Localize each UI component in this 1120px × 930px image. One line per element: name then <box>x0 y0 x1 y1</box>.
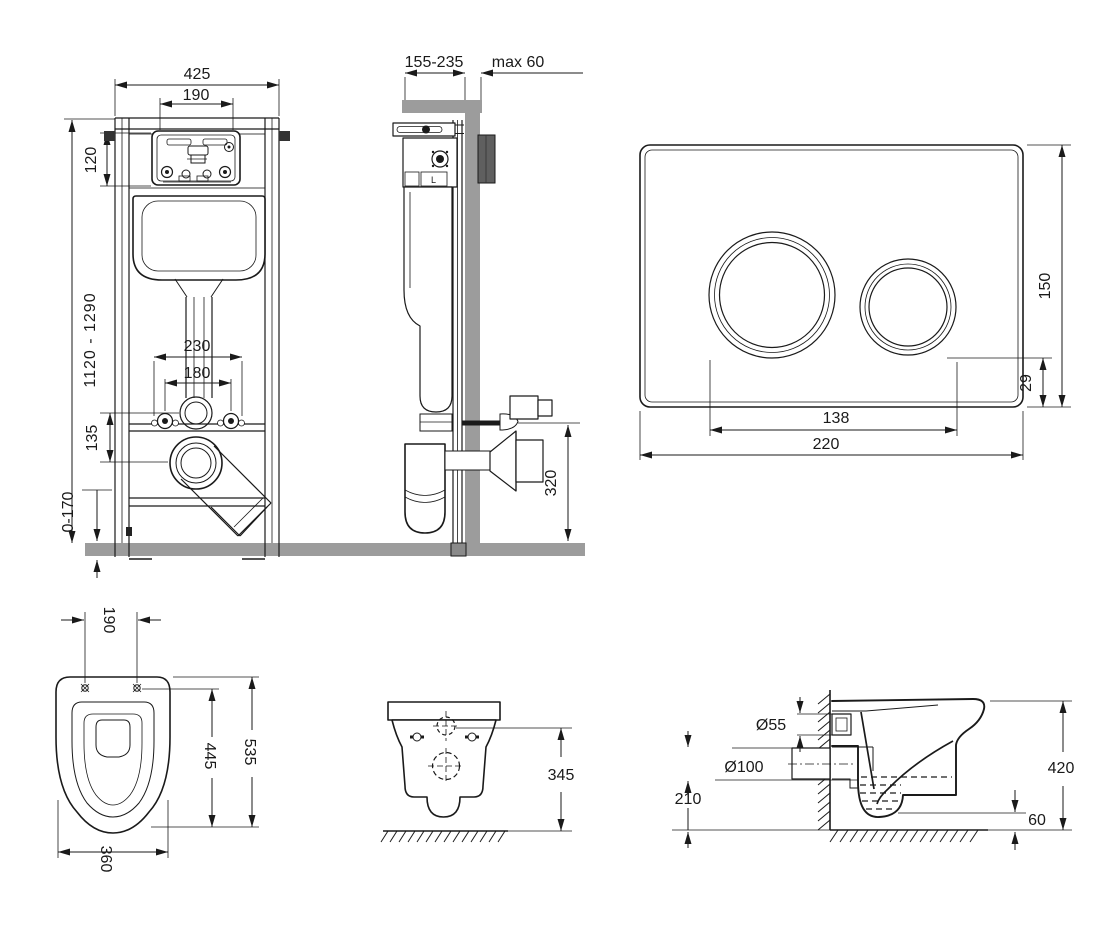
frame-side-view: 155-235 max 60 L <box>393 54 583 556</box>
wall-connectors <box>445 396 552 491</box>
drain-socket <box>170 437 271 536</box>
dim-outlet-diameter: Ø100 <box>724 759 763 776</box>
floor-hatch-side <box>830 830 978 842</box>
plate-housing <box>478 135 495 183</box>
dim-hole-depth: 445 <box>201 743 218 770</box>
drain-pipe <box>792 748 830 779</box>
dim-outlet-height: 320 <box>543 470 560 497</box>
frame-front-view: 1120 - 1290 0-170 425 190 120 <box>60 66 290 578</box>
dim-bowl-length: 535 <box>241 739 258 766</box>
top-bracket <box>393 123 464 136</box>
dim-button-span: 138 <box>823 410 850 427</box>
toilet-top-view: 190 445 535 360 <box>56 607 259 873</box>
dim-pipe-drop: 135 <box>84 425 101 452</box>
dim-inlet-height: 345 <box>548 767 575 784</box>
inlet-spigot <box>832 714 851 735</box>
dim-plate-width: 220 <box>813 436 840 453</box>
dim-frame-height-range: 1120 - 1290 <box>82 292 99 387</box>
toilet-front-view: 345 <box>381 702 574 842</box>
dim-anchor-span: 230 <box>184 338 211 355</box>
dim-access-width: 190 <box>183 87 210 104</box>
mechanism-label: L <box>431 175 436 185</box>
dim-plate-offset: 29 <box>1018 374 1035 392</box>
cistern-tank <box>133 196 265 429</box>
foot-side <box>451 543 466 556</box>
flush-plate-view: 150 29 138 220 <box>640 145 1071 460</box>
dim-hole-span: 190 <box>100 607 117 634</box>
wall-anchor-left <box>104 131 115 141</box>
dim-bowl-width: 360 <box>97 846 114 873</box>
dim-clearance: 60 <box>1028 812 1046 829</box>
floor-hatch <box>381 831 505 842</box>
dim-bolt-span: 180 <box>184 365 211 382</box>
floor-slab <box>85 543 585 556</box>
wall-anchor-right <box>279 131 290 141</box>
dim-inlet-diameter: Ø55 <box>756 717 786 734</box>
dim-outlet-height-side: 210 <box>675 791 702 808</box>
technical-drawing-sheet: 1120 - 1290 0-170 425 190 120 <box>0 0 1120 930</box>
ceiling-rail <box>402 100 482 113</box>
dim-plate-height: 150 <box>1037 273 1054 300</box>
dim-frame-width: 425 <box>184 66 211 83</box>
dim-access-height: 120 <box>83 147 100 174</box>
installation-diagram: 1120 - 1290 0-170 425 190 120 <box>0 0 1120 930</box>
dim-wall-max: max 60 <box>492 54 545 71</box>
dim-depth-range: 155-235 <box>405 54 464 71</box>
bowl-profile <box>832 699 984 817</box>
fixing-bolts <box>152 414 245 429</box>
cistern-side: L <box>403 138 457 533</box>
dim-total-height: 420 <box>1048 760 1075 777</box>
dim-foot-range: 0-170 <box>60 491 77 532</box>
cistern-access-window <box>129 131 265 188</box>
toilet-side-view: Ø55 Ø100 210 420 60 <box>672 690 1074 850</box>
